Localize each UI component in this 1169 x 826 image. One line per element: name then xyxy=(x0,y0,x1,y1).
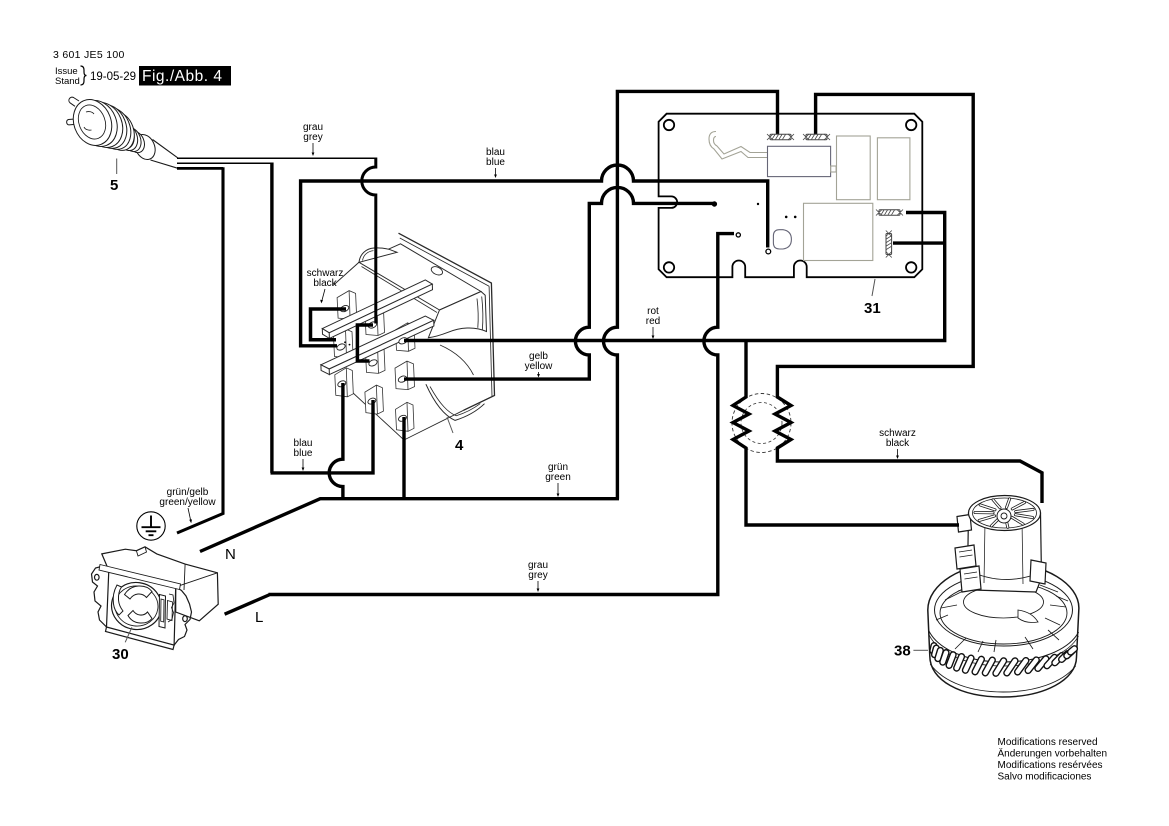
svg-text:black: black xyxy=(313,278,337,289)
svg-text:Salvo modificaciones: Salvo modificaciones xyxy=(998,772,1092,783)
svg-text:black: black xyxy=(886,438,910,449)
svg-text:Modifications resérvées: Modifications resérvées xyxy=(998,760,1103,771)
svg-text:blue: blue xyxy=(486,157,505,168)
svg-text:30: 30 xyxy=(112,646,129,663)
svg-text:green: green xyxy=(545,472,571,483)
svg-text:grey: grey xyxy=(528,570,547,581)
svg-text:31: 31 xyxy=(864,300,881,317)
svg-text:4: 4 xyxy=(455,437,464,454)
svg-text:3 601 JE5 100: 3 601 JE5 100 xyxy=(53,49,125,61)
svg-text:5: 5 xyxy=(110,177,118,194)
svg-text:green/yellow: green/yellow xyxy=(159,497,216,508)
svg-text:grey: grey xyxy=(303,132,322,143)
svg-text:L: L xyxy=(255,609,263,626)
svg-text:38: 38 xyxy=(894,643,911,660)
svg-text:Änderungen vorbehalten: Änderungen vorbehalten xyxy=(998,748,1108,760)
svg-text:yellow: yellow xyxy=(525,361,554,372)
svg-text:N: N xyxy=(225,546,236,563)
svg-text:red: red xyxy=(646,316,660,327)
svg-text:blue: blue xyxy=(294,448,313,459)
svg-text:Modifications reserved: Modifications reserved xyxy=(998,737,1098,748)
svg-text:19-05-29: 19-05-29 xyxy=(90,71,136,83)
svg-text:Fig./Abb. 4: Fig./Abb. 4 xyxy=(142,68,222,85)
svg-text:Stand: Stand xyxy=(55,76,80,87)
